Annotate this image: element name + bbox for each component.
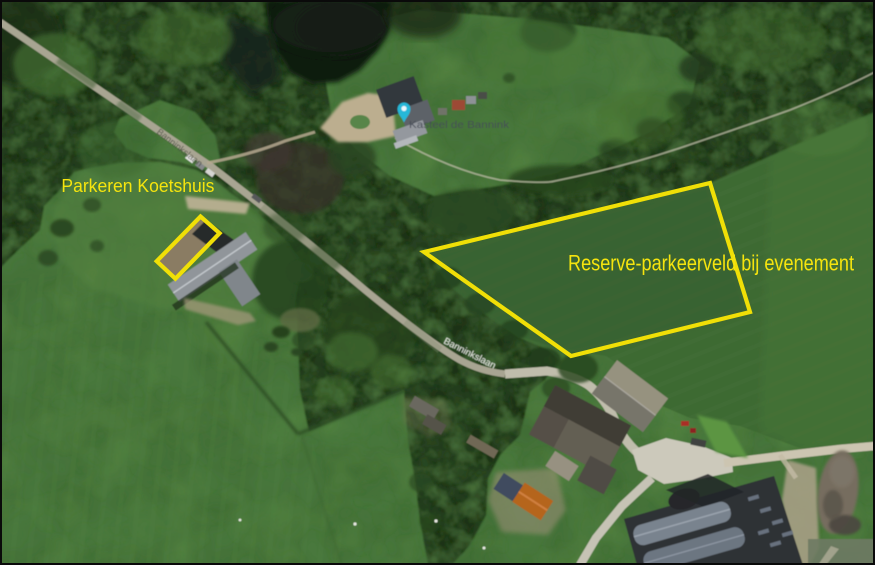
- svg-text:Reserve-parkeerveld bij evene: Reserve-parkeerveld bij evenement: [568, 251, 855, 276]
- svg-text:Parkeren Koetshuis: Parkeren Koetshuis: [61, 175, 214, 196]
- svg-text:Kasteel de Bannink: Kasteel de Bannink: [409, 120, 510, 131]
